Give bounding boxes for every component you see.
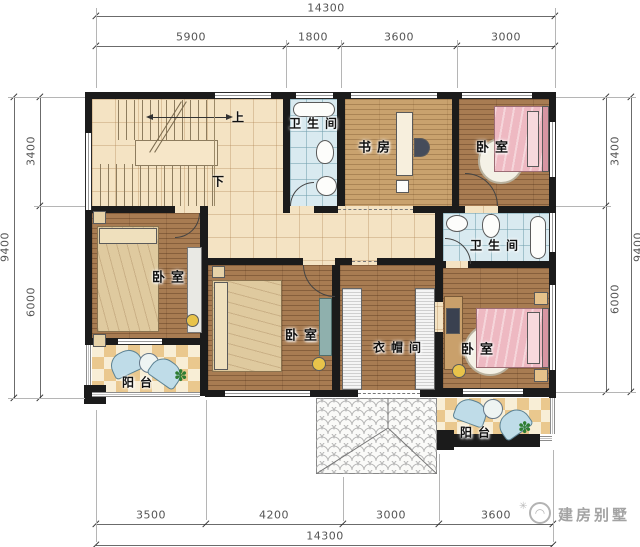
bedroom-left-nightstand bbox=[93, 334, 106, 347]
wall-bathroom-mid-left bbox=[435, 213, 443, 268]
window-top-bedroom bbox=[462, 92, 532, 99]
bedroom-center-pillow bbox=[214, 282, 228, 370]
sink-top bbox=[316, 176, 337, 196]
study-drawer bbox=[396, 180, 409, 193]
bedroom-bottom-right-label: 卧室 bbox=[461, 339, 499, 358]
dim-ext bbox=[8, 398, 85, 399]
floor-plan: 上 下 bbox=[0, 0, 640, 547]
bedroom-bottom-right-headboard bbox=[542, 308, 549, 368]
dim-right-overall: 9400 bbox=[632, 232, 640, 262]
bedroom-center-chair bbox=[312, 357, 326, 371]
wall-mid-horizontal bbox=[498, 206, 556, 213]
stair-landing bbox=[135, 140, 218, 166]
wall-left bbox=[85, 92, 92, 133]
dim-line bbox=[96, 16, 555, 17]
toilet-mid bbox=[482, 214, 500, 238]
wall-bedroom-right-left bbox=[435, 332, 443, 390]
dim-ext bbox=[286, 40, 287, 88]
bedroom-top-right-headboard bbox=[542, 106, 549, 172]
stair-arrow-left-icon bbox=[146, 114, 153, 120]
window-top-study bbox=[351, 92, 437, 99]
bathtub-mid bbox=[530, 216, 546, 259]
bedroom-bottom-right-nightstand bbox=[534, 369, 548, 382]
sink-mid bbox=[446, 215, 468, 232]
dim-ext bbox=[556, 392, 636, 393]
dim-ext bbox=[96, 8, 97, 88]
dim-ext bbox=[555, 8, 556, 88]
window-bottom-bedroom-center bbox=[225, 390, 310, 397]
wall-left bbox=[85, 210, 92, 345]
cloakroom-wardrobe-left bbox=[342, 288, 362, 390]
dim-bottom-overall: 14300 bbox=[306, 530, 344, 543]
bedroom-bottom-right-chair bbox=[452, 364, 466, 378]
dim-bottom-seg3: 3600 bbox=[481, 509, 511, 522]
dim-ext bbox=[556, 206, 611, 207]
wall-bedroom-left-bottom bbox=[162, 338, 200, 345]
window-right-bedroom-bottom bbox=[549, 285, 556, 370]
balcony-right-railing bbox=[550, 398, 555, 434]
bedroom-bottom-right-nightstand bbox=[534, 292, 548, 305]
bedroom-bottom-right-pillow bbox=[527, 312, 540, 364]
dim-top-seg2: 3600 bbox=[384, 31, 414, 44]
dim-ext bbox=[96, 410, 97, 542]
wall-bottom bbox=[310, 390, 358, 397]
wall-top bbox=[271, 92, 296, 99]
dim-ext bbox=[343, 477, 344, 521]
balcony-left-railing-bottom bbox=[92, 392, 200, 397]
wall-corridor-bottom bbox=[335, 258, 352, 265]
bedroom-center-label: 卧室 bbox=[285, 325, 323, 344]
dim-top-overall: 14300 bbox=[307, 2, 345, 15]
balcony-left-door bbox=[118, 338, 162, 345]
dim-left-seg1: 6000 bbox=[25, 287, 38, 317]
cloakroom-door-threshold bbox=[352, 261, 377, 262]
dim-line bbox=[606, 97, 607, 392]
wall-right bbox=[549, 370, 556, 398]
dim-line bbox=[40, 97, 41, 398]
dim-left-seg0: 3400 bbox=[25, 136, 38, 166]
entry-door-threshold bbox=[358, 393, 420, 394]
dim-ext bbox=[8, 97, 85, 98]
porch-roof bbox=[316, 398, 437, 474]
stair-up-label: 上 bbox=[232, 109, 244, 126]
bedroom-bottom-right-monitor bbox=[446, 308, 460, 334]
bedroom-center-nightstand bbox=[212, 266, 225, 278]
balcony-right-plant-icon: ✽ bbox=[518, 418, 531, 437]
watermark-logo-icon: ◠ bbox=[529, 502, 551, 524]
stair-direction-line bbox=[152, 117, 228, 118]
balcony-right-railing-corner bbox=[540, 436, 552, 441]
dim-ext bbox=[457, 40, 458, 88]
wall-bedroom-right-left bbox=[435, 268, 443, 302]
stair-down-label: 下 bbox=[212, 173, 224, 190]
dim-ext bbox=[34, 206, 85, 207]
dim-bottom-seg0: 3500 bbox=[136, 509, 166, 522]
dim-ext bbox=[439, 454, 440, 521]
balcony-left-label: 阳台 bbox=[122, 374, 158, 391]
wall-right bbox=[549, 92, 556, 122]
stair-flight-lower bbox=[100, 164, 213, 206]
wall-bathroom-mid-bottom bbox=[468, 261, 549, 268]
dim-bottom-seg2: 3000 bbox=[376, 509, 406, 522]
window-top-bathroom bbox=[296, 92, 333, 99]
dim-right-seg0: 3400 bbox=[609, 136, 622, 166]
study-desk bbox=[396, 112, 413, 176]
study-door-threshold bbox=[338, 209, 413, 210]
dim-line bbox=[96, 524, 553, 525]
wall-right bbox=[549, 252, 556, 285]
wall-bottom-bedroom bbox=[523, 388, 549, 397]
bedroom-left-nightstand bbox=[93, 211, 106, 224]
dim-ext bbox=[341, 40, 342, 88]
window-bottom-bedroom-right bbox=[463, 388, 523, 397]
balcony-left-plant-icon: ✽ bbox=[174, 366, 187, 385]
bathroom-mid-label: 卫生间 bbox=[470, 237, 524, 254]
dim-line bbox=[96, 46, 555, 47]
study-label: 书房 bbox=[358, 137, 396, 156]
dim-top-seg1: 1800 bbox=[298, 31, 328, 44]
dim-line bbox=[14, 97, 15, 398]
wall-top bbox=[437, 92, 462, 99]
dim-line bbox=[96, 545, 553, 546]
dim-bottom-seg1: 4200 bbox=[259, 509, 289, 522]
dim-ext bbox=[206, 400, 207, 520]
balcony-right-label: 阳台 bbox=[460, 424, 496, 441]
dim-ext bbox=[556, 97, 636, 98]
bedroom-left-pillow bbox=[99, 228, 157, 244]
wall-study-right bbox=[452, 99, 459, 206]
bathroom-top-label: 卫生间 bbox=[289, 115, 343, 132]
wall-top bbox=[85, 92, 215, 99]
window-right-bedroom-top bbox=[549, 122, 556, 177]
wall-mid-horizontal bbox=[413, 206, 465, 213]
dim-ext bbox=[553, 450, 554, 542]
wall-top bbox=[333, 92, 351, 99]
wall-mid-horizontal bbox=[314, 206, 338, 213]
wall-bottom bbox=[420, 390, 437, 397]
window-top-hall bbox=[215, 92, 271, 99]
bedroom-top-right-pillow bbox=[527, 111, 539, 167]
dim-left-overall: 9400 bbox=[0, 232, 12, 262]
wall-mid-horizontal bbox=[283, 206, 290, 213]
bedroom-left-label: 卧室 bbox=[152, 267, 190, 286]
wall-corridor-bottom bbox=[208, 258, 303, 265]
toilet-top bbox=[316, 140, 334, 164]
watermark-sparkle-icon: ✳ bbox=[519, 501, 527, 512]
dim-top-seg3: 3000 bbox=[491, 31, 521, 44]
window-right-bathroom bbox=[549, 213, 556, 252]
stair-edge-line bbox=[214, 99, 215, 206]
balcony-right-table bbox=[483, 399, 503, 419]
balcony-left-railing bbox=[86, 345, 91, 387]
cloakroom-label: 衣帽间 bbox=[373, 339, 427, 356]
dim-top-seg0: 5900 bbox=[176, 31, 206, 44]
window-left-stair bbox=[85, 133, 92, 210]
wall-corridor-bottom bbox=[377, 258, 435, 265]
dim-right-seg1: 6000 bbox=[609, 284, 622, 314]
bedroom-top-right-label: 卧室 bbox=[476, 137, 514, 156]
watermark-text: 建房别墅 bbox=[558, 504, 630, 525]
wall-bottom bbox=[205, 390, 225, 397]
bedroom-left-chair bbox=[186, 314, 199, 327]
